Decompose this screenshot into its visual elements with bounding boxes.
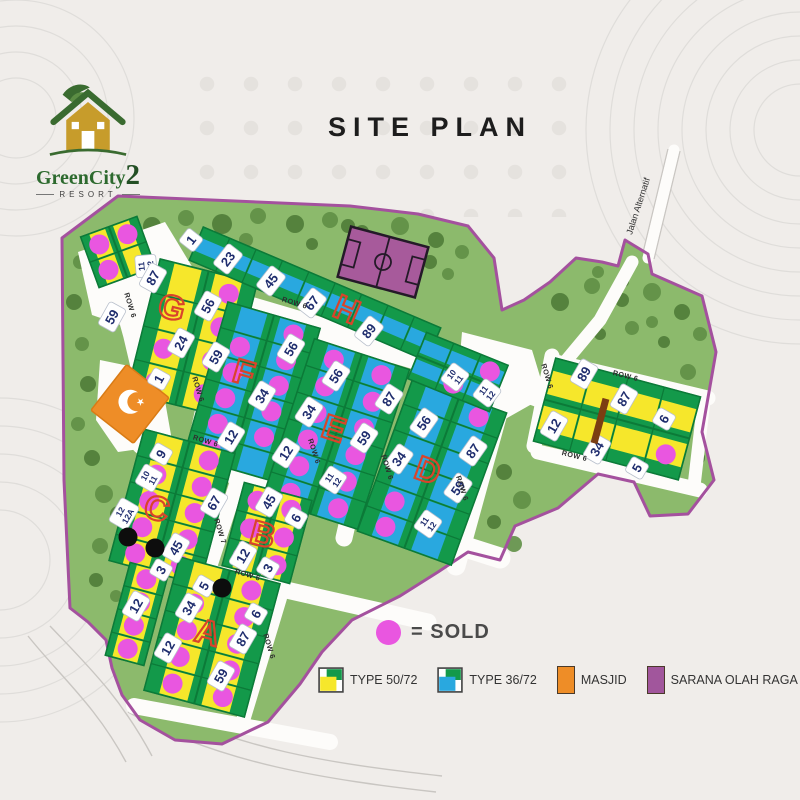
legend-item-label: MASJID [581, 673, 627, 687]
tree [80, 376, 96, 392]
logo-house-icon [42, 82, 134, 160]
black-dot [213, 579, 232, 598]
sold-dot-icon [376, 620, 401, 645]
legend-item-label: TYPE 36/72 [469, 673, 536, 687]
tree [66, 294, 82, 310]
type-50-72-icon [318, 667, 344, 693]
tree [84, 450, 100, 466]
decor-arc [0, 510, 50, 610]
tree [322, 212, 338, 228]
sarana-olah-raga-icon [647, 666, 665, 694]
type-36-72-icon [437, 667, 463, 693]
decor-arc [754, 84, 800, 176]
black-dot [146, 539, 165, 558]
tree [680, 364, 696, 380]
tree [442, 268, 454, 280]
decor-arc [706, 36, 800, 224]
tree [306, 238, 318, 250]
tree [674, 304, 690, 320]
tree [625, 321, 639, 335]
masjid-icon [557, 666, 575, 694]
sold-legend: = SOLD [376, 620, 490, 645]
legend-item-masjid: MASJID [557, 666, 627, 694]
legend-item-label: TYPE 50/72 [350, 673, 417, 687]
logo-rule-right [122, 194, 140, 195]
black-dot [119, 528, 138, 547]
logo-rule-left [36, 194, 54, 195]
tree [496, 464, 512, 480]
logo-subtitle: RESORT [22, 190, 154, 199]
legend-item-type-50-72: TYPE 50/72 [318, 667, 417, 693]
tree [592, 266, 604, 278]
tree [428, 232, 444, 248]
legend-item-label: SARANA OLAH RAGA [671, 673, 798, 687]
logo-name: GreenCity2 [22, 165, 154, 188]
tree [658, 336, 670, 348]
tree [513, 491, 531, 509]
decor-arc [730, 60, 800, 200]
tree [89, 573, 103, 587]
logo: GreenCity2 RESORT [22, 82, 154, 199]
street-label: Jalan Alternatif [624, 176, 652, 236]
page-title: SITE PLAN [300, 112, 560, 143]
legend-item-sarana-olah-raga: SARANA OLAH RAGA [647, 666, 798, 694]
tree [212, 214, 232, 234]
tree [693, 327, 707, 341]
tree [391, 217, 409, 235]
tree [178, 210, 194, 226]
logo-subtitle-text: RESORT [59, 190, 116, 199]
tree [286, 215, 304, 233]
tree [75, 337, 89, 351]
decor-arc [658, 0, 800, 272]
tree [643, 283, 661, 301]
legend-item-type-36-72: TYPE 36/72 [437, 667, 536, 693]
tree [95, 485, 113, 503]
tree [646, 316, 658, 328]
tree [455, 245, 469, 259]
sold-legend-label: = SOLD [411, 621, 490, 644]
tree [551, 293, 569, 311]
site-plan-poster: ★111287565924159563412568734591211125634… [0, 0, 800, 800]
decor-arc [682, 12, 800, 248]
tree [250, 208, 266, 224]
map-legend: TYPE 50/72 TYPE 36/72MASJIDSARANA OLAH R… [318, 666, 798, 694]
tree [584, 278, 600, 294]
tree [71, 417, 85, 431]
tree [487, 515, 501, 529]
tree [92, 538, 108, 554]
